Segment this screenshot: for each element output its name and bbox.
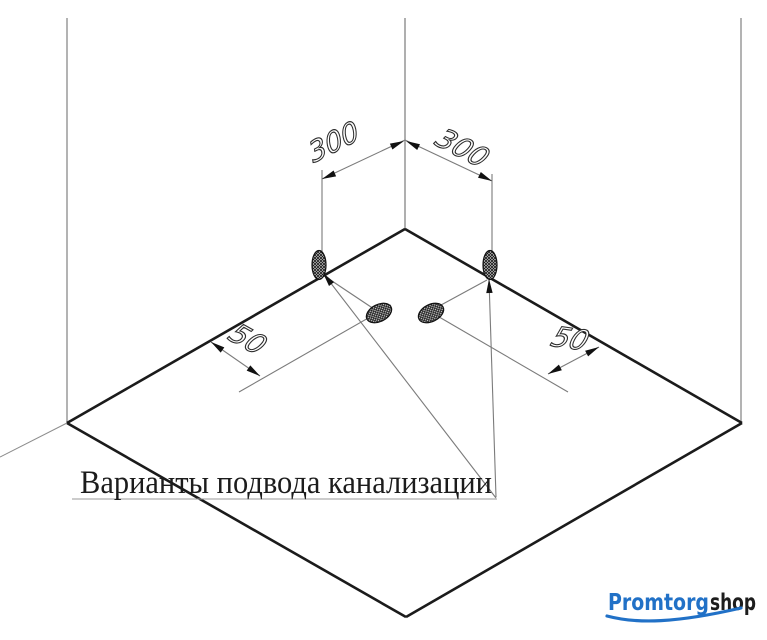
floor-edge-lower-right (406, 423, 742, 617)
thin-lines (72, 140, 599, 499)
floor-edge-extension (0, 423, 67, 457)
brand-logo: Promtorgshop (607, 590, 756, 621)
floor-edge-lower-left (67, 423, 406, 617)
sewage-outlet-floor-right (415, 299, 447, 326)
dimension-value-300-right: 300 (429, 122, 496, 173)
caption-text: Варианты подвода канализации (80, 465, 492, 501)
sewage-outlet-wall-right (483, 251, 497, 280)
arrowhead (585, 344, 600, 356)
dimension-labels: 300 300 50 50 (222, 114, 593, 361)
drawing-canvas: 300 300 50 50 Варианты подвода канализац… (0, 0, 767, 640)
arrowhead (547, 365, 562, 377)
arrowhead (405, 138, 420, 150)
sewage-outlet-floor-left (363, 299, 395, 326)
arrowhead (321, 171, 336, 182)
offset-line-right (434, 314, 568, 392)
arrowhead (247, 365, 262, 378)
isometric-drawing: 300 300 50 50 Варианты подвода канализац… (0, 0, 767, 640)
floor-outline (67, 229, 742, 617)
dimension-value-300-left: 300 (305, 114, 363, 170)
brand-logo-text: Promtorgshop (608, 590, 756, 616)
sewage-outlet-wall-left (312, 251, 326, 280)
arrowhead (486, 279, 493, 293)
sewage-outlets (312, 251, 497, 327)
arrowhead (478, 172, 493, 184)
brand-logo-part1: Promtorg (608, 590, 709, 616)
arrowhead (390, 138, 405, 149)
